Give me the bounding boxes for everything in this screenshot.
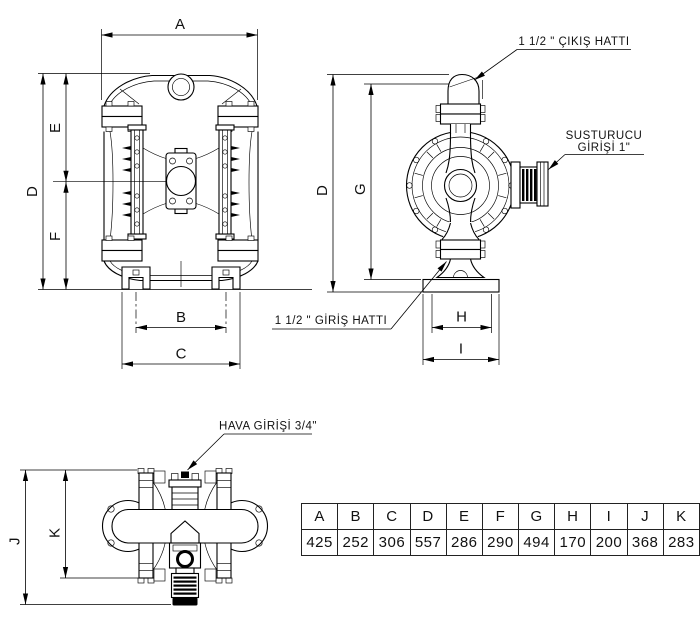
dim-col-value: 557 bbox=[410, 530, 446, 556]
inlet-bell bbox=[437, 259, 484, 278]
dim-label-c: C bbox=[176, 346, 187, 363]
dim-col-header: J bbox=[627, 504, 663, 530]
dimension-table-header-row: A B C D E F G H I J K bbox=[302, 504, 700, 530]
dim-col-value: 306 bbox=[374, 530, 410, 556]
dim-col-value: 286 bbox=[446, 530, 482, 556]
top-view-drawing bbox=[103, 469, 268, 606]
dim-col-header: A bbox=[302, 504, 338, 530]
front-view-drawing bbox=[38, 74, 312, 290]
leader-inlet bbox=[391, 262, 447, 330]
leader-silencer bbox=[549, 155, 566, 170]
dim-label-f: F bbox=[47, 232, 64, 241]
outlet-port-front bbox=[168, 74, 194, 100]
dim-col-value: 200 bbox=[591, 530, 627, 556]
dim-col-header: H bbox=[555, 504, 591, 530]
air-inlet-port bbox=[181, 472, 189, 479]
dimension-table: A B C D E F G H I J K 425 252 306 557 28… bbox=[301, 503, 700, 556]
base-plate bbox=[423, 280, 499, 293]
dim-col-header: C bbox=[374, 504, 410, 530]
leader-air-inlet bbox=[188, 434, 225, 470]
dim-label-d: D bbox=[24, 186, 41, 197]
dim-label-j: J bbox=[7, 538, 24, 546]
dim-label-g: G bbox=[352, 183, 369, 195]
dim-label-h: H bbox=[456, 309, 467, 326]
dimension-table-value-row: 425 252 306 557 286 290 494 170 200 368 … bbox=[302, 530, 700, 556]
dim-col-header: D bbox=[410, 504, 446, 530]
dim-label-b: B bbox=[176, 309, 186, 326]
dim-col-header: F bbox=[482, 504, 518, 530]
annotation-outlet-line: 1 1/2 " ÇIKIŞ HATTI bbox=[518, 36, 629, 48]
annotation-air-inlet: HAVA GİRİŞİ 3/4" bbox=[219, 420, 317, 433]
dim-col-value: 290 bbox=[482, 530, 518, 556]
dim-col-value: 368 bbox=[627, 530, 663, 556]
valve-port bbox=[178, 552, 193, 567]
dim-col-value: 170 bbox=[555, 530, 591, 556]
dim-label-e: E bbox=[47, 123, 64, 133]
dim-col-header: G bbox=[519, 504, 555, 530]
dim-col-header: I bbox=[591, 504, 627, 530]
side-view-drawing bbox=[407, 75, 549, 293]
pump-dimension-drawing: A D E F B C bbox=[0, 0, 700, 636]
dim-col-header: E bbox=[446, 504, 482, 530]
dim-label-a: A bbox=[175, 16, 185, 33]
dim-label-d-side: D bbox=[314, 185, 331, 196]
dim-col-value: 252 bbox=[338, 530, 374, 556]
dim-label-k: K bbox=[47, 528, 64, 538]
dim-col-value: 425 bbox=[302, 530, 338, 556]
dim-col-value: 494 bbox=[519, 530, 555, 556]
annotation-inlet-line: 1 1/2 " GİRİŞ HATTI bbox=[275, 314, 387, 327]
leader-outlet bbox=[475, 50, 518, 81]
dim-label-i: I bbox=[459, 341, 463, 358]
dim-col-value: 283 bbox=[663, 530, 699, 556]
dim-col-header: K bbox=[663, 504, 699, 530]
annotation-silencer-line1: SUSTURUCU bbox=[566, 130, 643, 142]
outlet-elbow bbox=[448, 75, 479, 105]
annotation-silencer-line2: GİRİŞİ 1" bbox=[578, 141, 631, 154]
dim-col-header: B bbox=[338, 504, 374, 530]
